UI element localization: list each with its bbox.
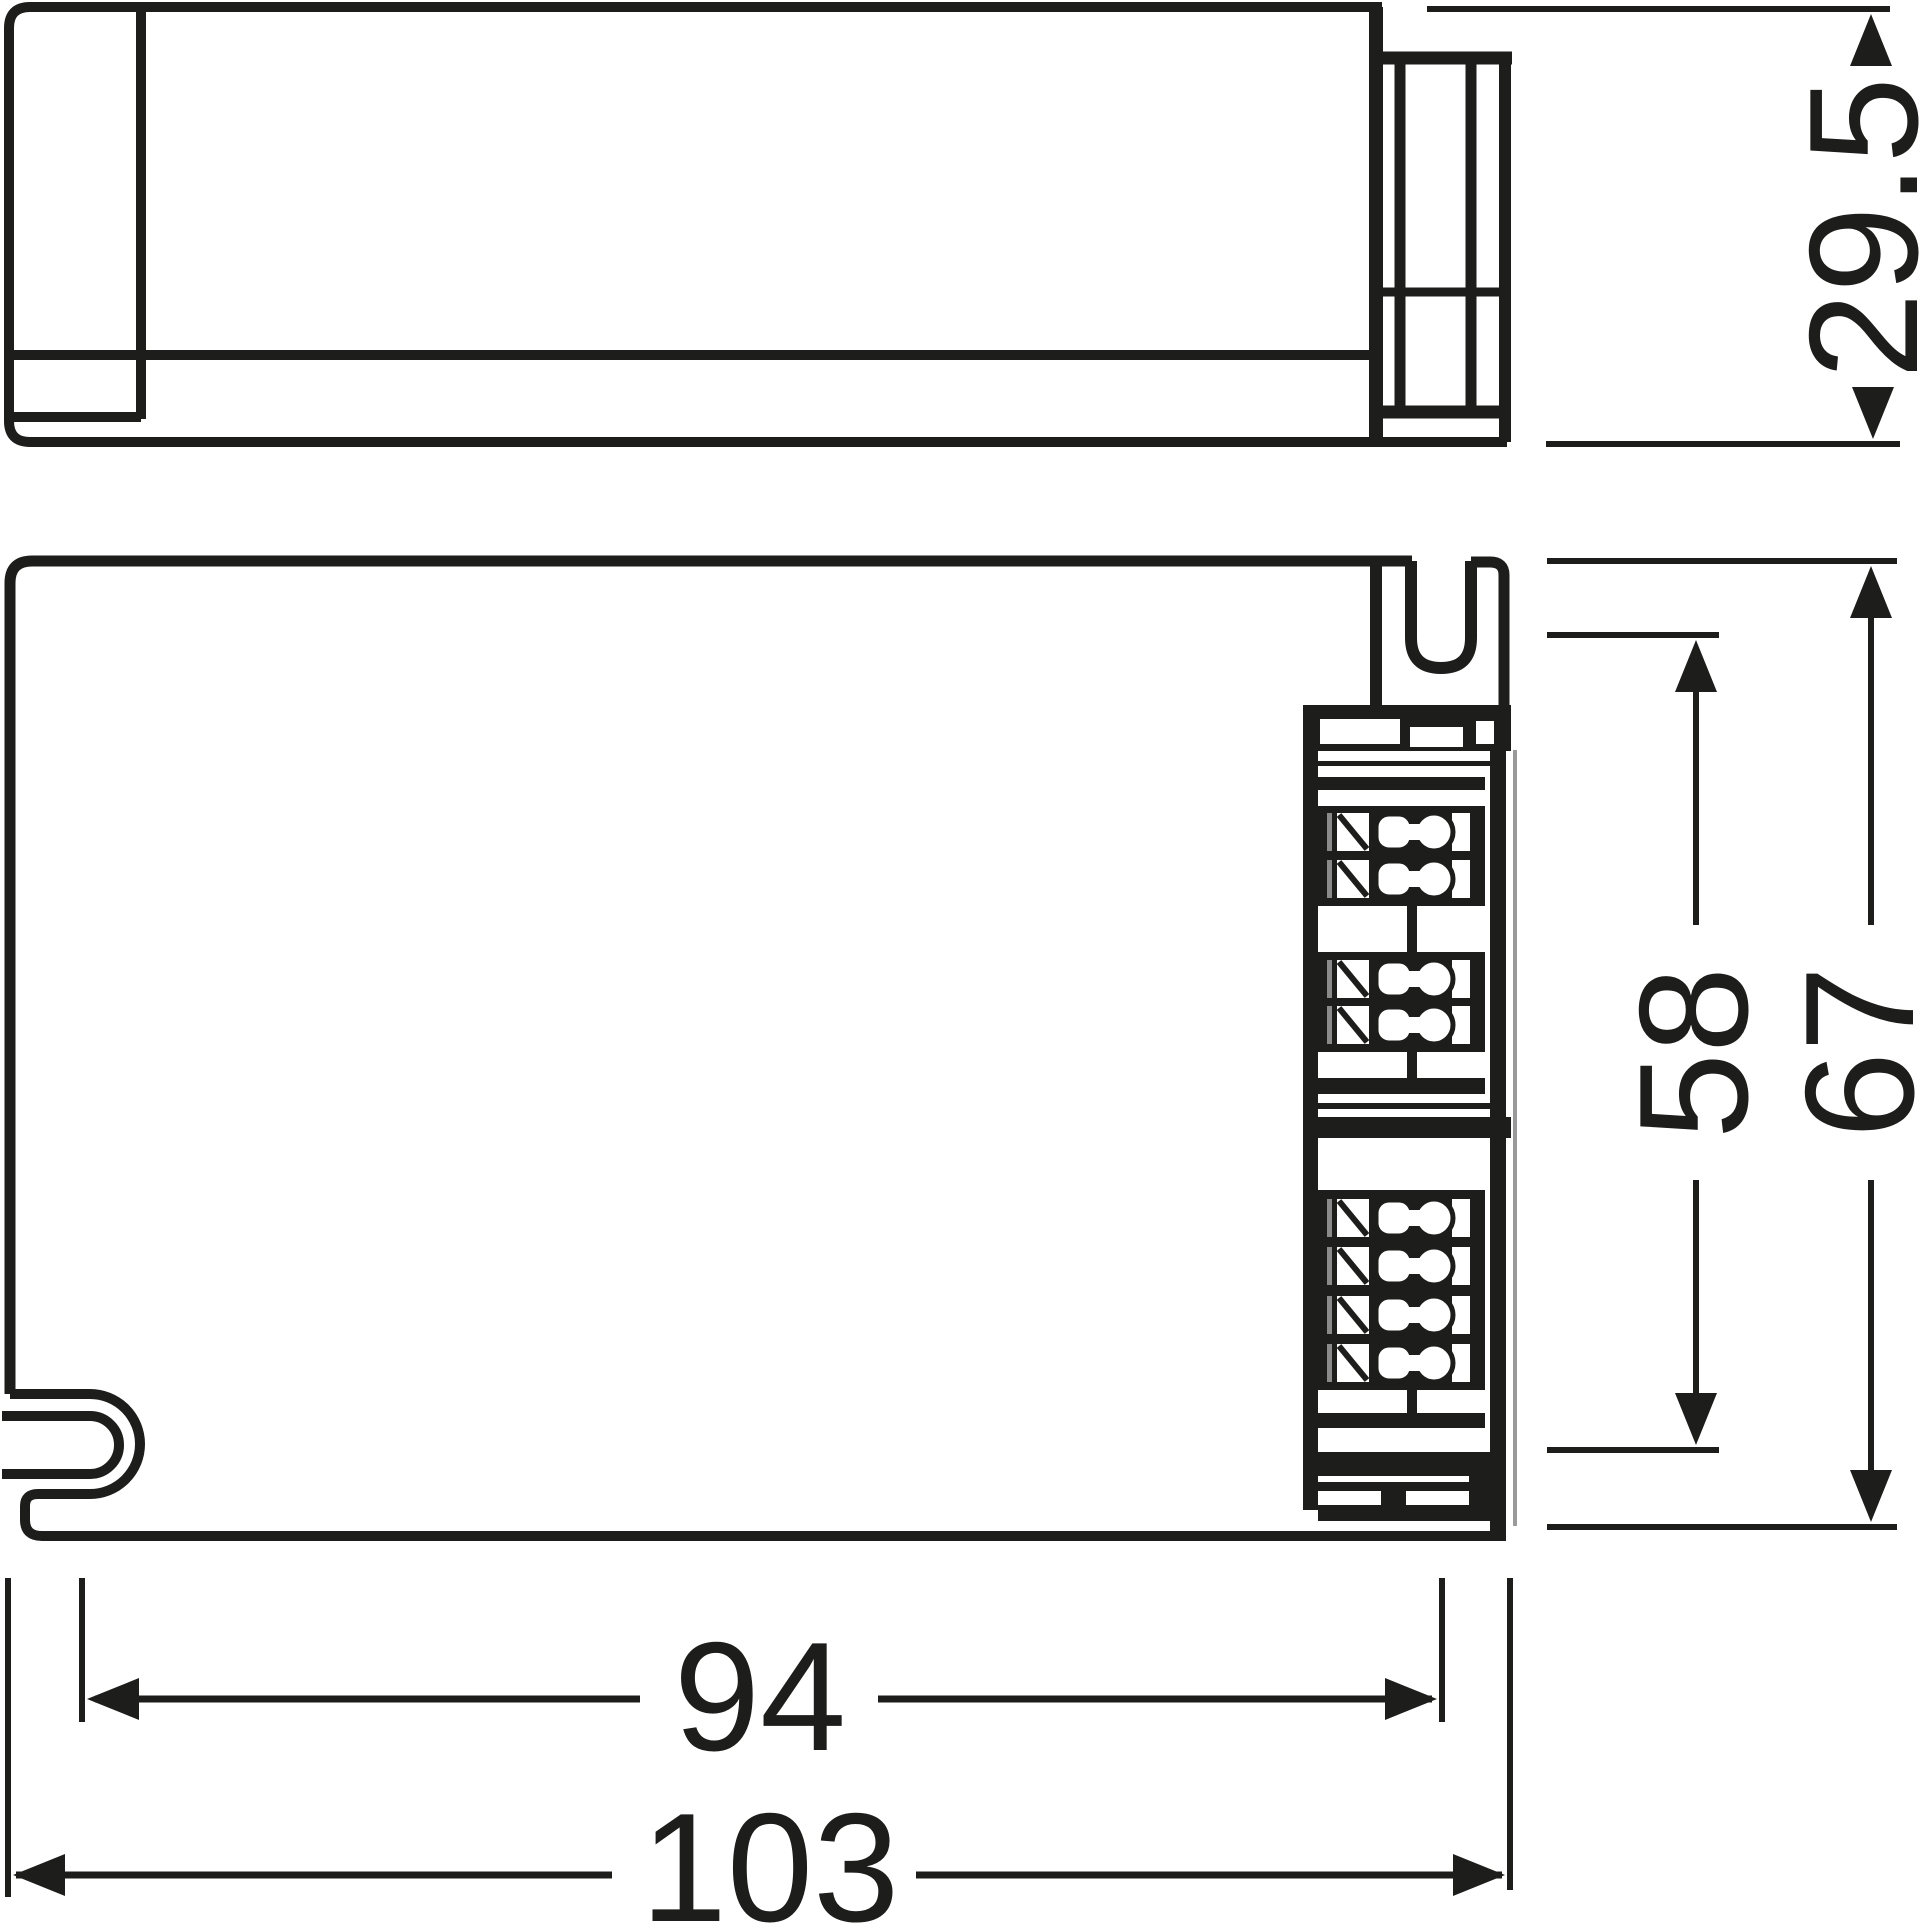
svg-text:67: 67 — [1773, 966, 1920, 1138]
svg-text:29.5: 29.5 — [1777, 77, 1920, 379]
svg-text:94: 94 — [674, 1610, 846, 1783]
svg-text:103: 103 — [641, 1781, 900, 1924]
svg-text:58: 58 — [1607, 967, 1780, 1139]
